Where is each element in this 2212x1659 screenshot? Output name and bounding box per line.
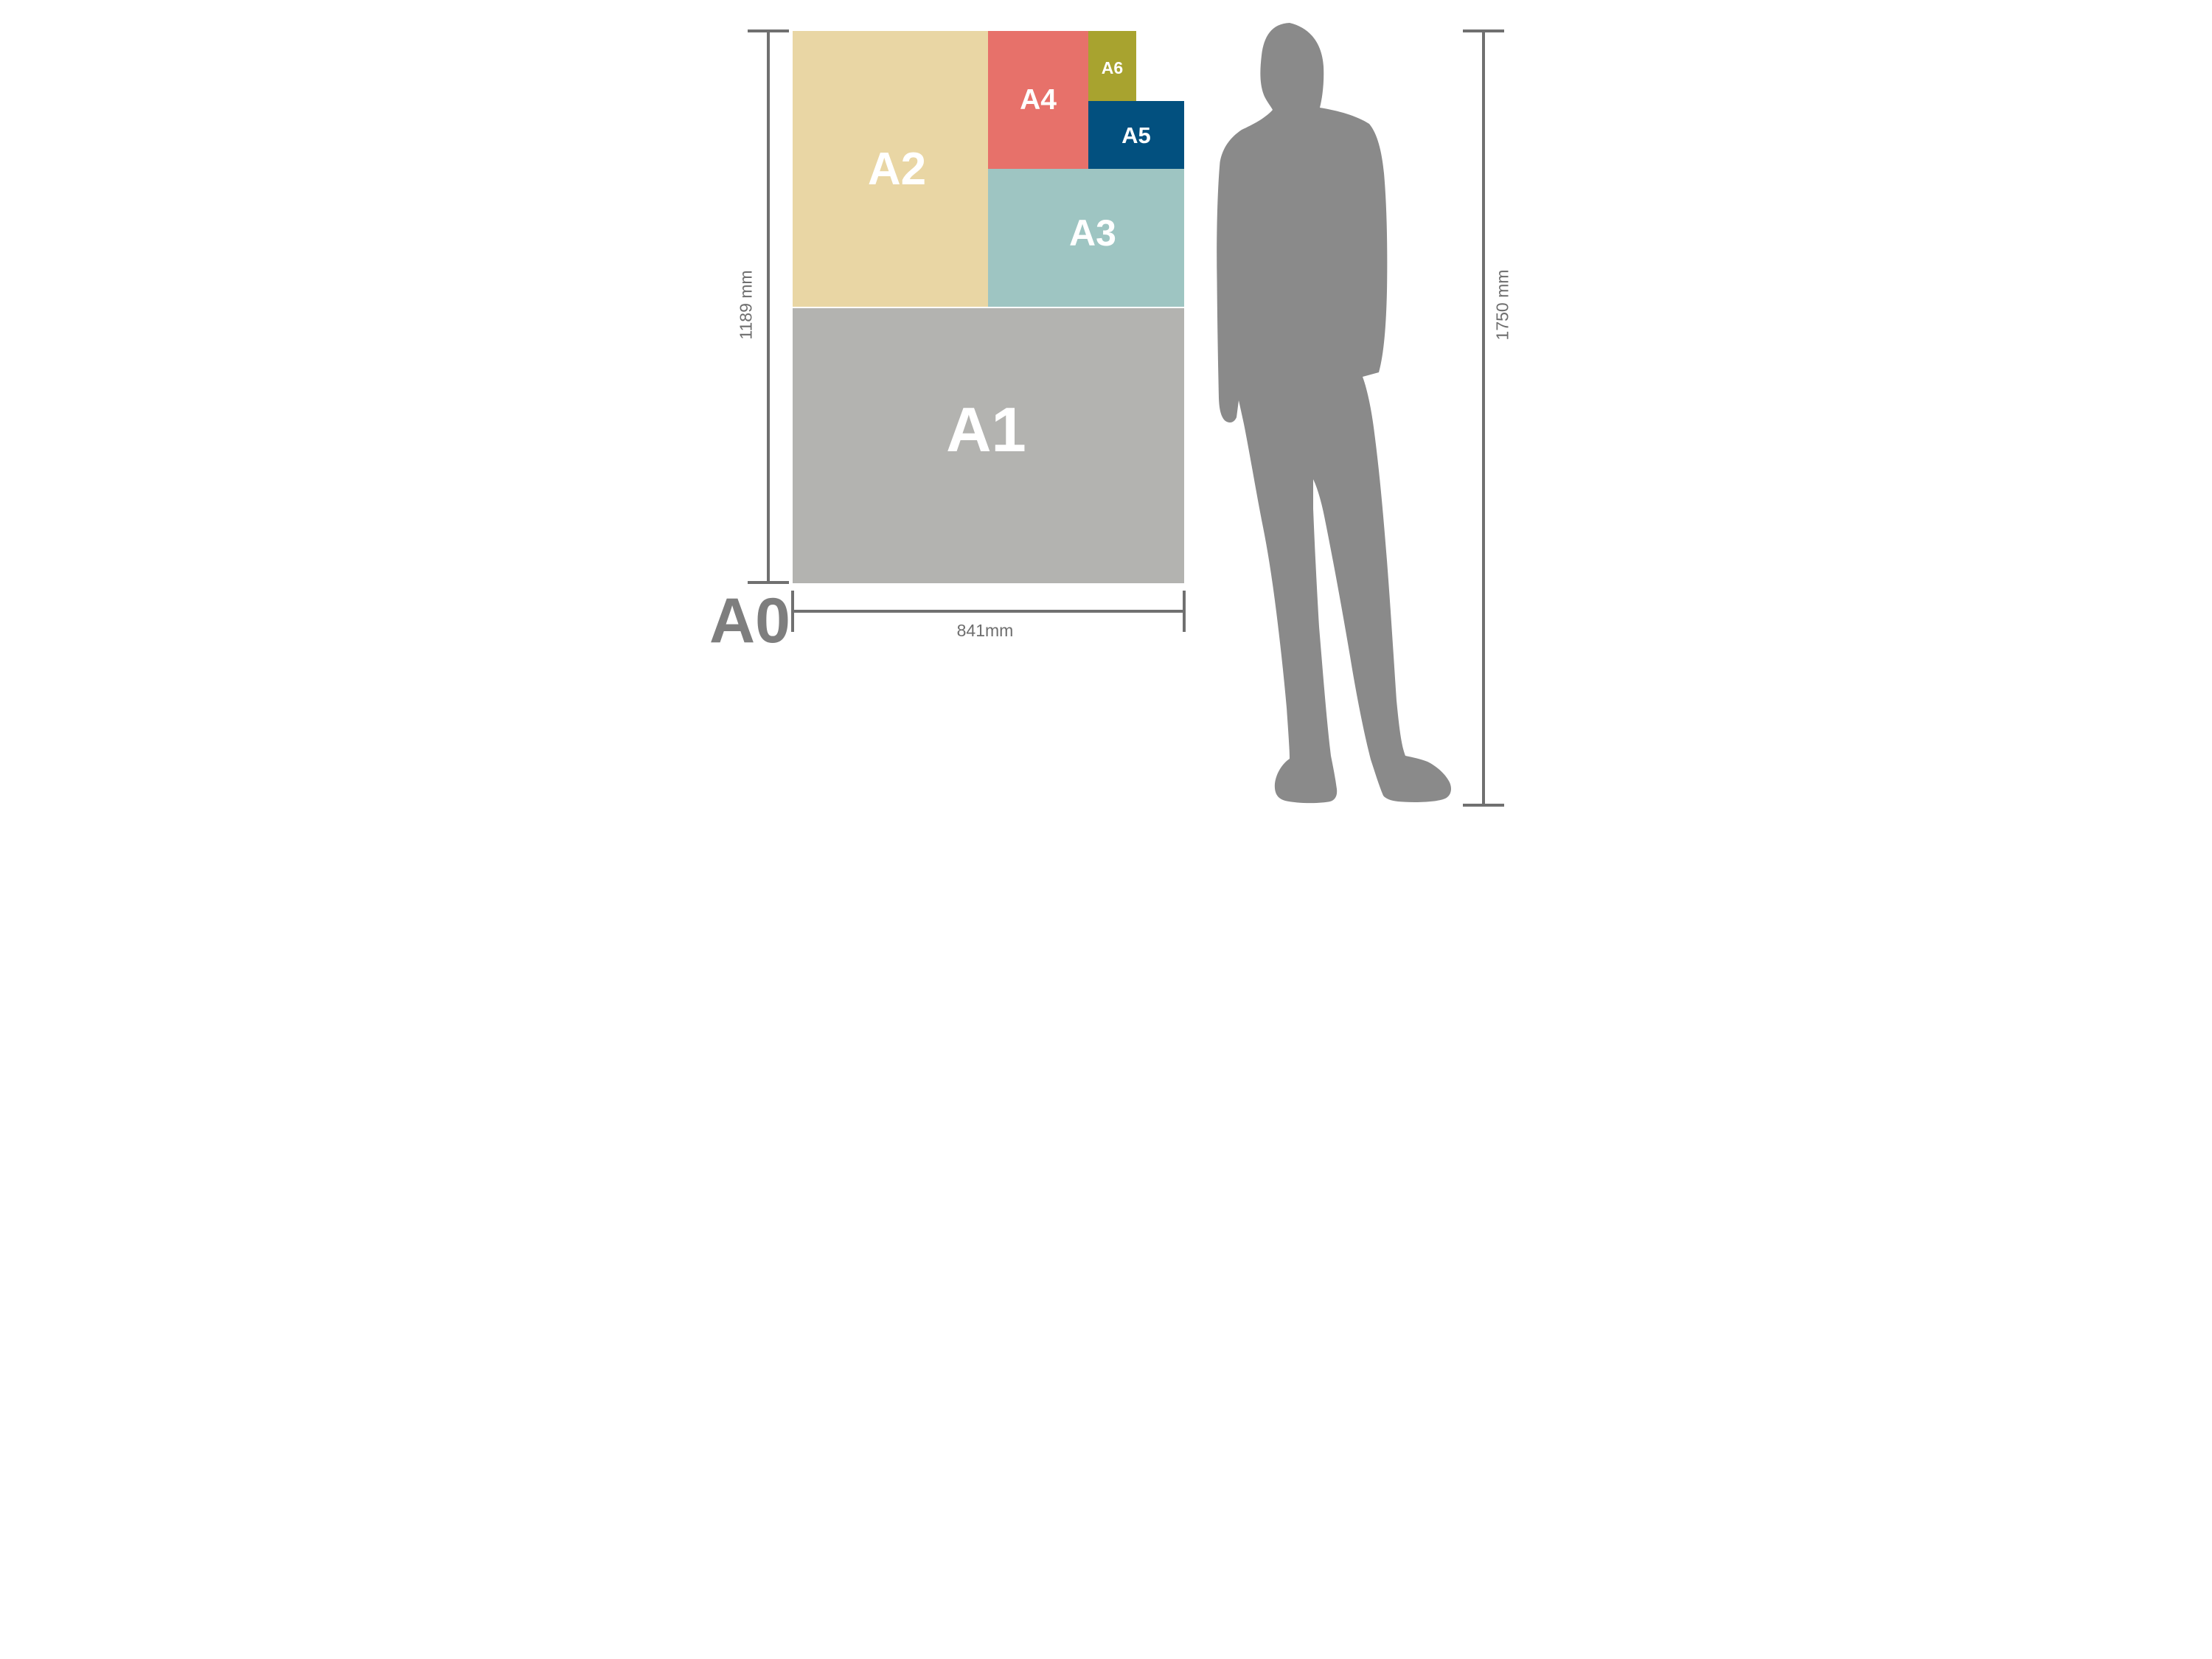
paper-sizes-diagram: A2 A4 A6 A5 A3 A1 1189 mm 841mm 1750 mm … <box>553 0 1659 829</box>
person-silhouette <box>553 0 1659 829</box>
person-silhouette-path <box>1217 23 1451 803</box>
